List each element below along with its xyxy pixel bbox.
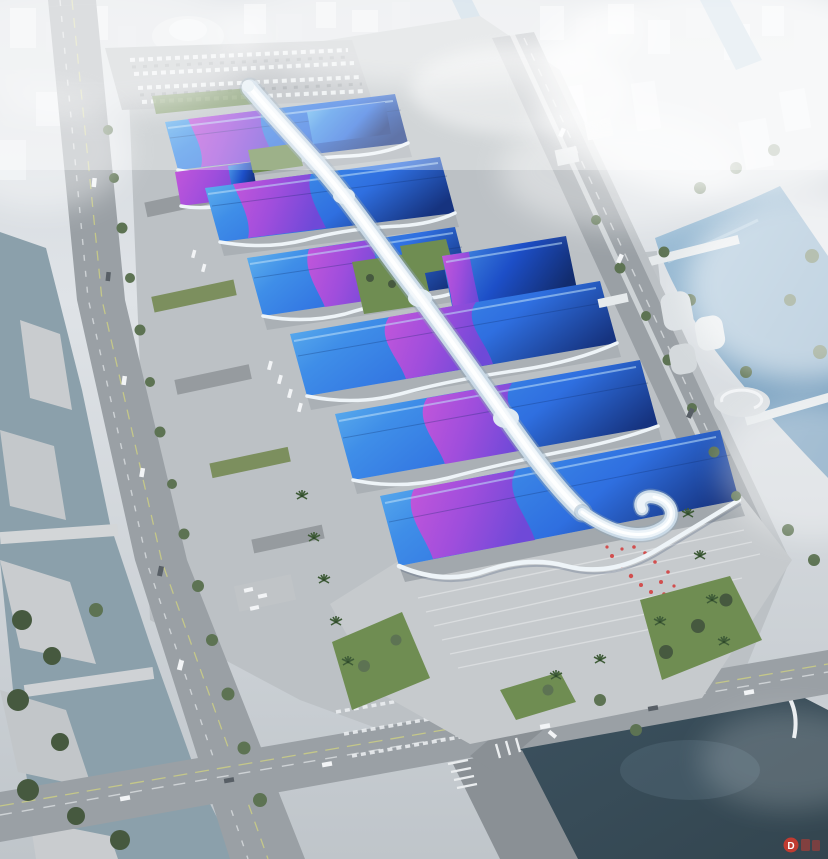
watermark-glyphs	[801, 839, 810, 851]
scene-canvas: D	[0, 0, 828, 859]
watermark-glyphs	[812, 840, 820, 851]
aerial-rendering-exhibition-center: D	[0, 0, 828, 859]
watermark-letter: D	[787, 841, 794, 852]
